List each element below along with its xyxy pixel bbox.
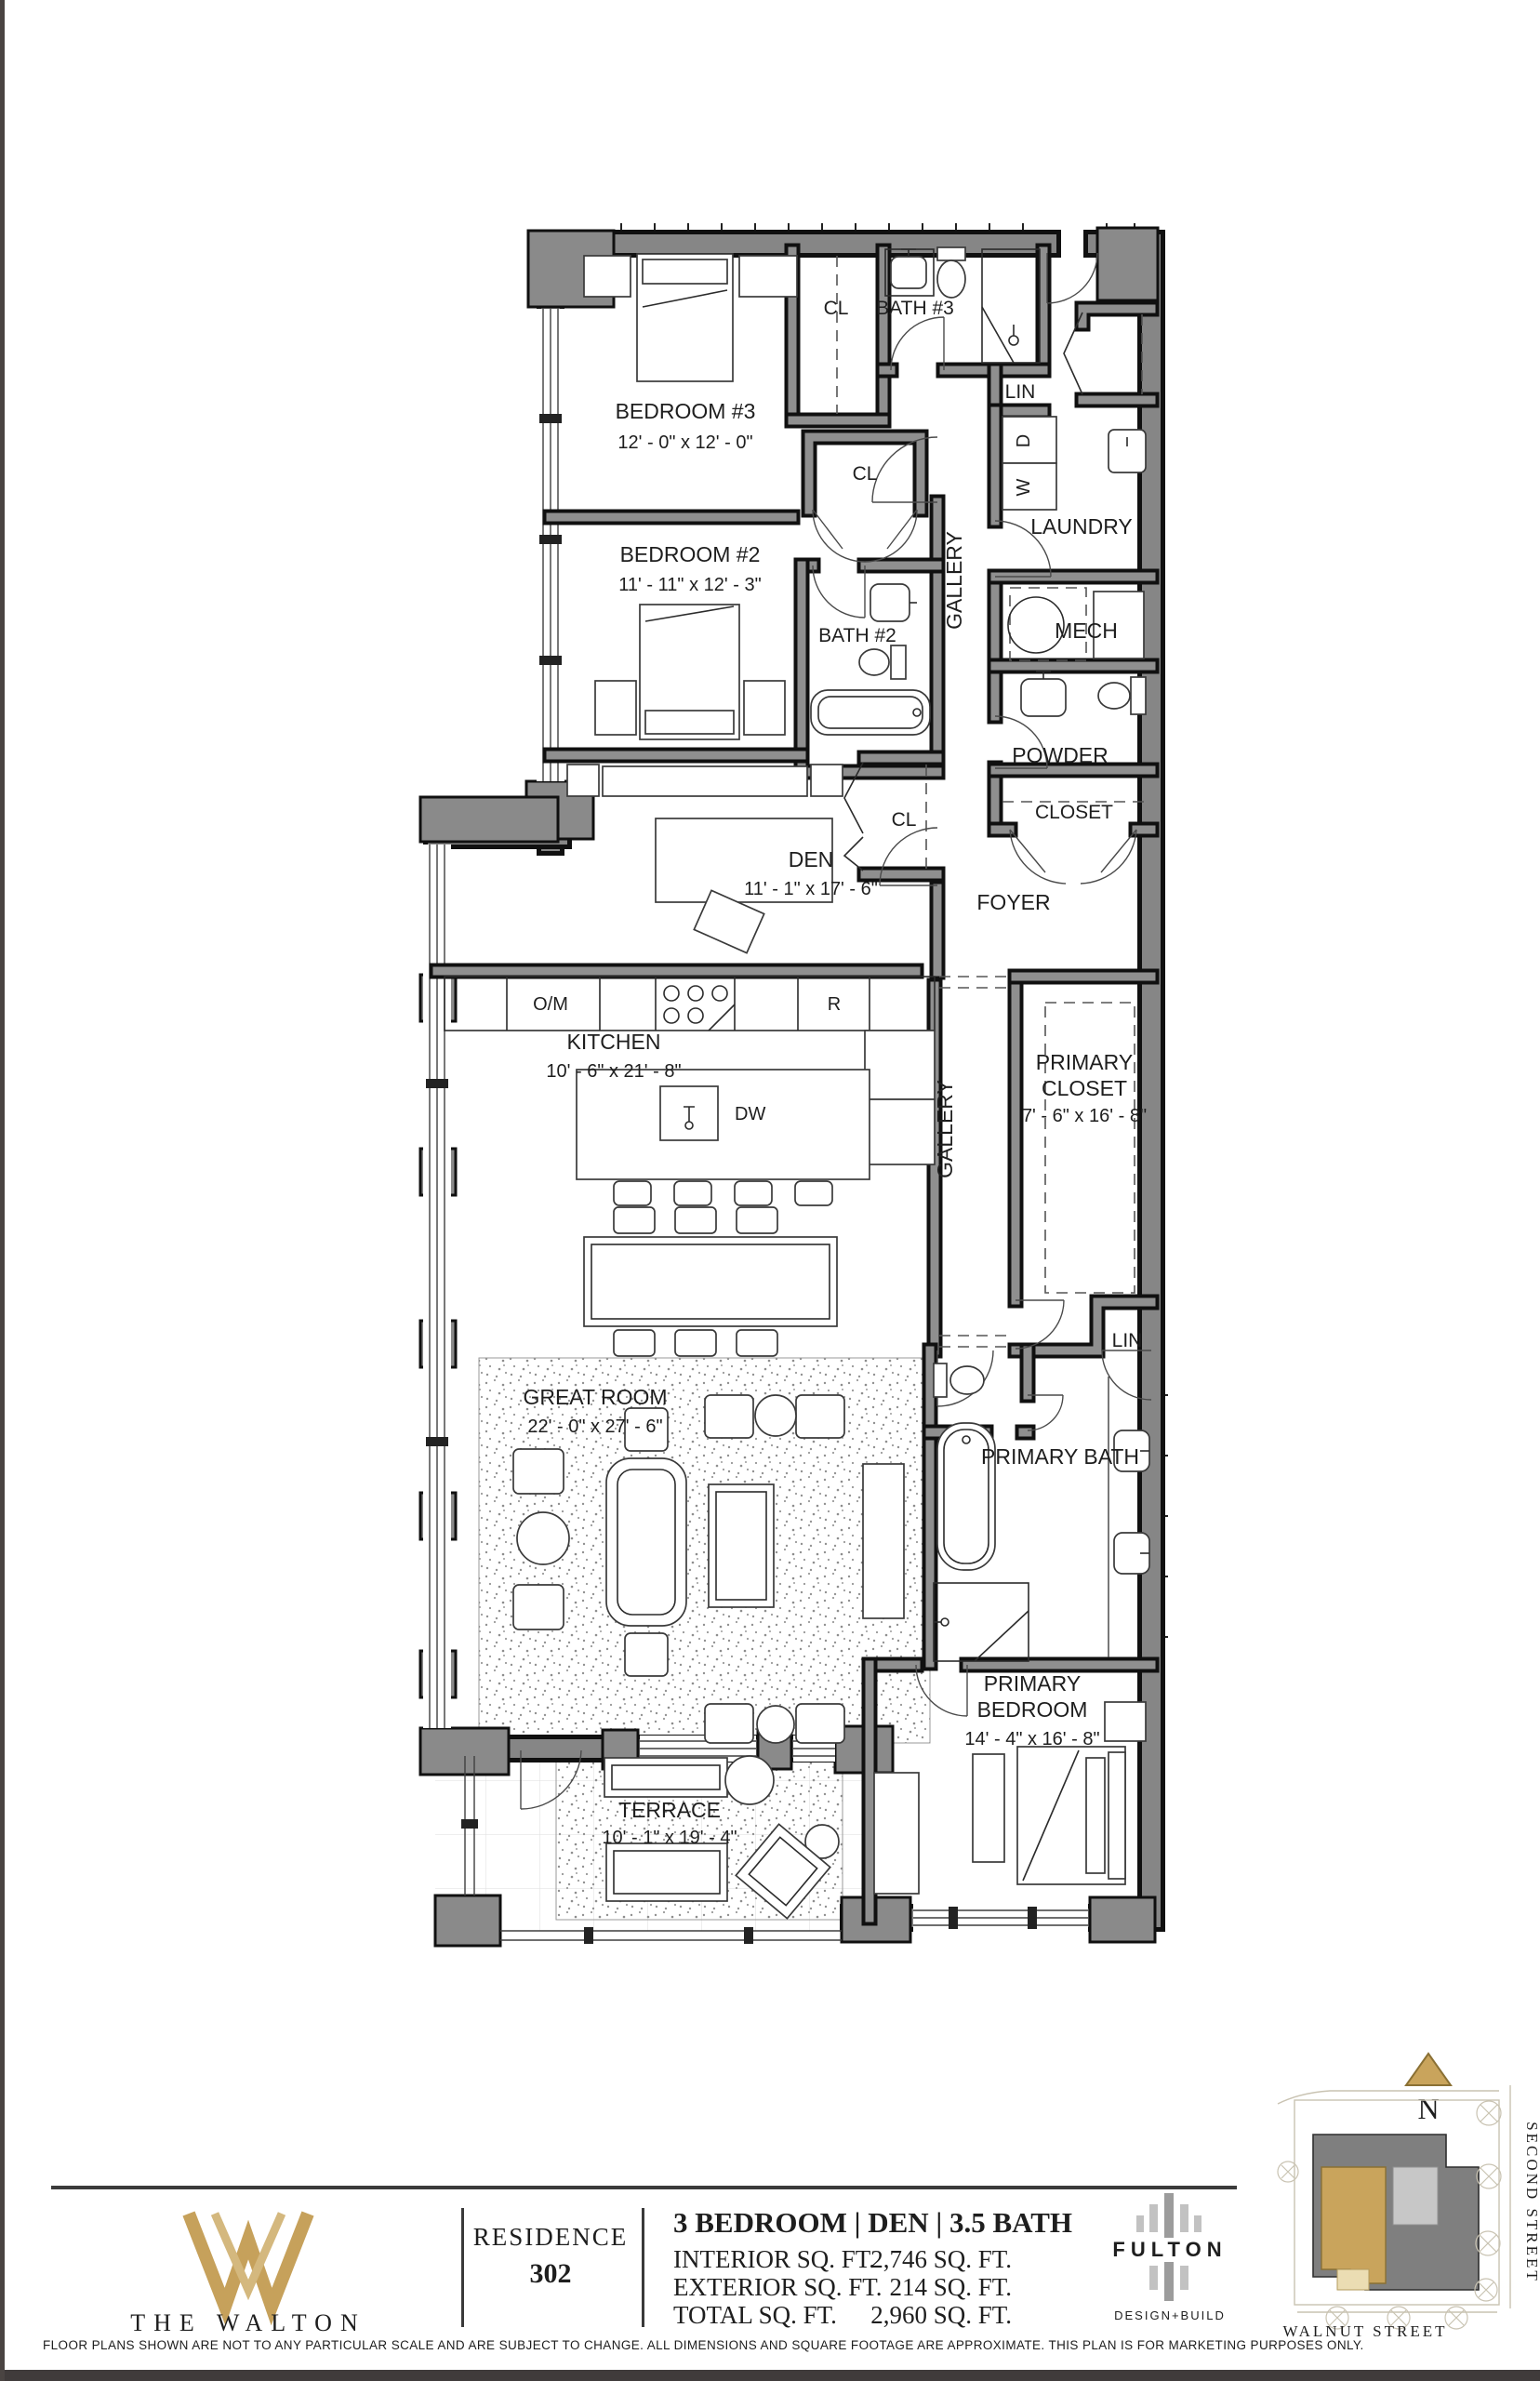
powder-fixtures xyxy=(1021,672,1146,716)
highlighted-unit xyxy=(1321,2167,1386,2283)
dryer-label: D xyxy=(1014,434,1034,447)
sqft-row-value: 2,960 SQ. FT. xyxy=(870,2301,1012,2329)
sqft-row-label: EXTERIOR SQ. FT. xyxy=(673,2273,883,2301)
range-label: R xyxy=(828,994,841,1015)
brand-name: THE WALTON xyxy=(130,2309,365,2336)
bedroom2-label: BEDROOM #2 xyxy=(620,542,761,566)
den-dim: 11' - 1" x 17' - 6" xyxy=(744,879,878,899)
gallery-label-2: GALLERY xyxy=(933,1080,957,1178)
second-street-label: SECOND STREET xyxy=(1523,2122,1540,2283)
mech-label: MECH xyxy=(1055,619,1118,643)
bottom-bar xyxy=(0,2370,1540,2381)
closet-cl-label-2: CL xyxy=(853,463,878,485)
terrace-dim: 10' - 1" x 19' - 4" xyxy=(602,1828,737,1848)
great-room-dim: 22' - 0" x 27' - 6" xyxy=(527,1417,662,1437)
unit-type: 3 BEDROOM | DEN | 3.5 BATH xyxy=(673,2206,1072,2239)
sheet-canvas: BEDROOM #3 12' - 0" x 12' - 0" CL BATH #… xyxy=(0,0,1540,2381)
left-edge-line xyxy=(0,0,5,2381)
primary-closet-dim: 7' - 6" x 16' - 8" xyxy=(1022,1106,1147,1126)
foyer-label: FOYER xyxy=(976,890,1050,914)
primary-closet-label-1: PRIMARY xyxy=(1036,1050,1133,1074)
kitchen-label: KITCHEN xyxy=(567,1030,661,1054)
bath2-fixtures xyxy=(811,584,930,735)
builder-name: FULTON xyxy=(1112,2238,1227,2261)
footer-rule xyxy=(51,2186,1237,2189)
primary-bath-label: PRIMARY BATH xyxy=(981,1444,1139,1469)
disclaimer: FLOOR PLANS SHOWN ARE NOT TO ANY PARTICU… xyxy=(43,2338,1364,2352)
bedroom2-dim: 11' - 11" x 12' - 3" xyxy=(618,575,761,595)
gallery-label-1: GALLERY xyxy=(942,531,966,630)
sqft-row-value: 214 SQ. FT. xyxy=(889,2273,1012,2301)
kitchen-fixtures xyxy=(445,977,935,1356)
highlighted-unit-terrace xyxy=(1337,2269,1369,2290)
dishwasher-label: DW xyxy=(735,1104,765,1124)
site-map: N SECOND STREET WALNUT STREET xyxy=(1278,2054,1540,2340)
terrace-label: TERRACE xyxy=(618,1798,721,1822)
residence-number: 302 xyxy=(530,2258,572,2289)
laundry-label: LAUNDRY xyxy=(1030,514,1133,539)
primary-bedroom-label-2: BEDROOM xyxy=(977,1697,1088,1722)
linen-label-2: LIN xyxy=(1112,1330,1143,1351)
footer-divider-1 xyxy=(461,2208,464,2327)
primary-closet-label-2: CLOSET xyxy=(1042,1076,1127,1100)
sqft-row-label: TOTAL SQ. FT. xyxy=(673,2301,837,2329)
washer-label: W xyxy=(1014,478,1034,496)
residence-label: RESIDENCE xyxy=(473,2223,629,2251)
bath2-label: BATH #2 xyxy=(818,625,896,646)
kitchen-dim: 10' - 6" x 21' - 8" xyxy=(546,1061,681,1082)
north-label: N xyxy=(1417,2092,1439,2125)
closet-cl-label-1: CL xyxy=(824,298,849,319)
closet-cl-label-3: CL xyxy=(892,809,917,831)
bedroom3-dim: 12' - 0" x 12' - 0" xyxy=(617,432,752,453)
closet-label: CLOSET xyxy=(1035,802,1113,823)
sqft-row-label: INTERIOR SQ. FT. xyxy=(673,2245,875,2273)
floor-plan: BEDROOM #3 12' - 0" x 12' - 0" CL BATH #… xyxy=(420,223,1168,1946)
bedroom3-label: BEDROOM #3 xyxy=(616,399,756,423)
great-room-label: GREAT ROOM xyxy=(523,1385,667,1409)
primary-bedroom-dim: 14' - 4" x 16' - 8" xyxy=(964,1729,1099,1749)
north-arrow-icon xyxy=(1406,2054,1451,2085)
powder-label: POWDER xyxy=(1012,743,1109,767)
fulton-logo: FULTON DESIGN+BUILD xyxy=(1112,2193,1227,2322)
floorplan-sheet: BEDROOM #3 12' - 0" x 12' - 0" CL BATH #… xyxy=(0,0,1540,2381)
den-label: DEN xyxy=(789,847,834,871)
walton-logo: THE WALTON xyxy=(130,2214,365,2336)
oven-microwave-label: O/M xyxy=(533,994,568,1015)
sqft-row-value: 2,746 SQ. FT. xyxy=(870,2245,1012,2273)
bath3-label: BATH #3 xyxy=(876,298,954,319)
builder-tagline: DESIGN+BUILD xyxy=(1114,2308,1226,2322)
linen-label-1: LIN xyxy=(1005,381,1036,403)
bedroom3-furniture xyxy=(584,254,797,381)
footer-divider-2 xyxy=(642,2208,644,2327)
primary-bedroom-label-1: PRIMARY xyxy=(984,1671,1081,1696)
primary-bath-fixtures xyxy=(934,1363,1149,1661)
building-core xyxy=(1393,2167,1438,2225)
sqft-table: INTERIOR SQ. FT. 2,746 SQ. FT. EXTERIOR … xyxy=(673,2245,1012,2329)
